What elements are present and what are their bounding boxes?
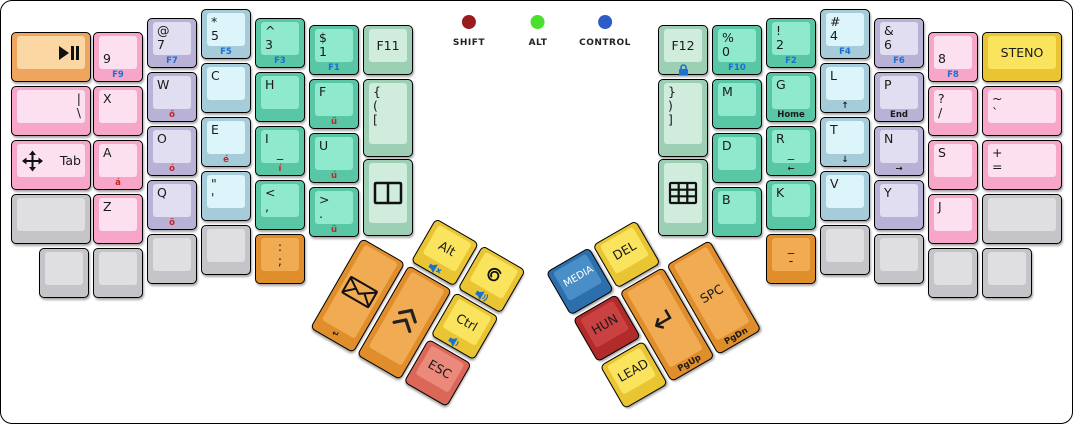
key-legend: 0 bbox=[722, 45, 752, 59]
envelope-icon bbox=[339, 273, 380, 311]
key-b[interactable]: B bbox=[712, 187, 762, 237]
led-control-label: CONTROL bbox=[579, 38, 631, 48]
key-legend: ↵ bbox=[644, 299, 686, 343]
front-legend: ó bbox=[148, 164, 196, 175]
key-legend: ~ bbox=[992, 92, 1052, 106]
front-legend: → bbox=[875, 164, 923, 175]
front-legend: Home bbox=[767, 110, 815, 121]
key-legend: # bbox=[830, 15, 860, 29]
key-legend: Alt bbox=[431, 235, 464, 262]
front-legend bbox=[659, 63, 707, 74]
key-legend: ` bbox=[992, 106, 1052, 120]
grid-icon bbox=[668, 181, 698, 205]
led-shift: SHIFT bbox=[453, 15, 485, 48]
key-legend: / bbox=[938, 106, 968, 120]
led-shift-label: SHIFT bbox=[453, 38, 485, 48]
key-legend: O bbox=[157, 132, 187, 146]
key-a[interactable]: Aá bbox=[93, 140, 143, 190]
key-k[interactable]: K bbox=[766, 180, 816, 230]
key-blank-br-3[interactable] bbox=[928, 248, 978, 298]
key-legend: ! bbox=[776, 24, 806, 38]
key-legend: HUN bbox=[588, 311, 621, 338]
key-h[interactable]: H bbox=[255, 72, 305, 122]
key-legend: 6 bbox=[884, 38, 914, 52]
key-blank-left-row4[interactable] bbox=[11, 194, 91, 244]
key-legend: V bbox=[830, 177, 860, 191]
key-legend: ' bbox=[211, 191, 241, 205]
key-legend: DEL bbox=[608, 237, 641, 264]
key-blank-bl-4[interactable] bbox=[201, 225, 251, 275]
key-legend: > bbox=[319, 193, 349, 207]
key-legend: F bbox=[319, 85, 349, 99]
key-blank-br-4[interactable] bbox=[982, 248, 1032, 298]
key-legend: STENO bbox=[992, 46, 1052, 60]
key-legend: G bbox=[776, 78, 806, 92]
key-legend: | bbox=[21, 92, 81, 106]
key-legend: T bbox=[830, 123, 860, 137]
key-blank-br-2[interactable] bbox=[874, 234, 924, 284]
key-t[interactable]: T↓ bbox=[820, 117, 870, 167]
key-legend: Ctrl bbox=[451, 309, 484, 336]
key-star-5[interactable]: *5F5 bbox=[201, 9, 251, 59]
key-g[interactable]: GHome bbox=[766, 72, 816, 122]
key-legend: ] bbox=[668, 113, 698, 127]
key-legend: M bbox=[722, 85, 752, 99]
key-u[interactable]: Uú bbox=[309, 133, 359, 183]
front-legend: á bbox=[94, 178, 142, 189]
front-legend: ü bbox=[310, 225, 358, 236]
key-m[interactable]: M bbox=[712, 79, 762, 129]
key-excl-2[interactable]: !2F2 bbox=[766, 18, 816, 68]
key-legend: = bbox=[992, 160, 1052, 174]
key-legend: } bbox=[668, 85, 698, 99]
led-control-dot bbox=[598, 15, 612, 29]
key-plus-equals[interactable]: += bbox=[982, 140, 1062, 190]
key-legend: Q bbox=[157, 186, 187, 200]
key-w[interactable]: Wő bbox=[147, 72, 197, 122]
key-i[interactable]: I_í bbox=[255, 126, 305, 176]
key-legend: F11 bbox=[373, 39, 403, 53]
key-f12[interactable]: F12 bbox=[658, 25, 708, 75]
key-legend bbox=[103, 38, 133, 52]
key-legend: 7 bbox=[157, 38, 187, 52]
key-legend: & bbox=[884, 24, 914, 38]
key-legend: J bbox=[938, 200, 968, 214]
key-brace-open[interactable]: {([ bbox=[363, 79, 413, 157]
key-steno[interactable]: STENO bbox=[982, 32, 1062, 82]
move-icon bbox=[22, 150, 43, 171]
key-n[interactable]: N→ bbox=[874, 126, 924, 176]
key-v[interactable]: V bbox=[820, 171, 870, 221]
key-legend: - bbox=[776, 254, 806, 268]
key-legend: { bbox=[373, 85, 403, 99]
key-play-pause[interactable] bbox=[11, 32, 91, 82]
key-legend: E bbox=[211, 123, 241, 137]
key-legend: \ bbox=[21, 106, 81, 120]
front-legend: F6 bbox=[875, 56, 923, 67]
led-alt: ALT bbox=[529, 15, 548, 48]
key-legend: 8 bbox=[938, 52, 968, 66]
key-legend: * bbox=[211, 15, 241, 29]
key-pct-0[interactable]: %0F10 bbox=[712, 25, 762, 75]
key-q[interactable]: Qö bbox=[147, 180, 197, 230]
key-at-7[interactable]: @7F7 bbox=[147, 18, 197, 68]
key-o[interactable]: Oó bbox=[147, 126, 197, 176]
key-amp-6[interactable]: &6F6 bbox=[874, 18, 924, 68]
key-split-layout[interactable] bbox=[363, 159, 413, 236]
front-legend: F8 bbox=[929, 70, 977, 81]
split-icon bbox=[373, 181, 403, 205]
key-legend: _ bbox=[776, 146, 806, 160]
key-legend: : bbox=[265, 240, 295, 254]
key-colon-semicolon[interactable]: :; bbox=[255, 234, 305, 284]
key-9[interactable]: 9F9 bbox=[93, 32, 143, 82]
key-legend: ( bbox=[373, 99, 403, 113]
key-legend: W bbox=[157, 78, 187, 92]
key-legend: 2 bbox=[776, 38, 806, 52]
key-caret-3[interactable]: ^3F3 bbox=[255, 18, 305, 68]
keyboard-canvas: |\Tab9F9XAáZ@7F7WőOóQö*5F5CEé"'^3F3HI_í<… bbox=[0, 0, 1073, 424]
led-control: CONTROL bbox=[579, 15, 631, 48]
key-legend: ESC bbox=[424, 356, 457, 383]
key-dollar-1[interactable]: $1F1 bbox=[309, 25, 359, 75]
key-legend: @ bbox=[157, 24, 187, 38]
front-legend: ← bbox=[767, 164, 815, 175]
key-legend: MEDIA bbox=[562, 265, 593, 290]
key-legend: D bbox=[722, 139, 752, 153]
key-question-slash[interactable]: ?/ bbox=[928, 86, 978, 136]
key-x[interactable]: X bbox=[93, 86, 143, 136]
key-legend: [ bbox=[373, 113, 403, 127]
front-legend: ő bbox=[148, 110, 196, 121]
key-pipe-backslash[interactable]: |\ bbox=[11, 86, 91, 136]
key-legend bbox=[938, 38, 968, 52]
debian-icon bbox=[478, 259, 511, 292]
key-legend: 1 bbox=[319, 45, 349, 59]
key-legend: 5 bbox=[211, 29, 241, 43]
key-legend: LEAD bbox=[615, 358, 648, 385]
key-tab[interactable]: Tab bbox=[11, 140, 91, 190]
key-blank-bl-2[interactable] bbox=[93, 248, 143, 298]
key-blank-right-row4[interactable] bbox=[982, 194, 1062, 244]
key-r[interactable]: R_← bbox=[766, 126, 816, 176]
key-c[interactable]: C bbox=[201, 63, 251, 113]
key-legend: $ bbox=[319, 31, 349, 45]
front-legend: F2 bbox=[767, 56, 815, 67]
key-legend: N bbox=[884, 132, 914, 146]
key-legend: " bbox=[211, 177, 241, 191]
front-legend: F9 bbox=[94, 70, 142, 81]
key-f11[interactable]: F11 bbox=[363, 25, 413, 75]
key-legend: 4 bbox=[830, 29, 860, 43]
key-hash-4[interactable]: #4F4 bbox=[820, 9, 870, 59]
key-legend: F12 bbox=[668, 39, 698, 53]
key-legend: _ bbox=[265, 146, 295, 160]
key-blank-br-1[interactable] bbox=[820, 225, 870, 275]
key-z[interactable]: Z bbox=[93, 194, 143, 244]
front-legend: é bbox=[202, 155, 250, 166]
key-p[interactable]: PEnd bbox=[874, 72, 924, 122]
key-legend: _ bbox=[776, 240, 806, 254]
key-lt-comma[interactable]: <, bbox=[255, 180, 305, 230]
key-legend: S bbox=[938, 146, 968, 160]
key-quote[interactable]: "' bbox=[201, 171, 251, 221]
key-legend: ? bbox=[938, 92, 968, 106]
key-legend: 9 bbox=[103, 52, 133, 66]
key-8[interactable]: 8F8 bbox=[928, 32, 978, 82]
key-e[interactable]: Eé bbox=[201, 117, 251, 167]
key-brace-close[interactable]: })] bbox=[658, 79, 708, 157]
front-legend: ű bbox=[310, 117, 358, 128]
key-gt-period[interactable]: >.ü bbox=[309, 187, 359, 237]
key-legend: 3 bbox=[265, 38, 295, 52]
key-f[interactable]: Fű bbox=[309, 79, 359, 129]
key-l[interactable]: L↑ bbox=[820, 63, 870, 113]
front-legend: ↓ bbox=[821, 155, 869, 166]
key-legend: ) bbox=[668, 99, 698, 113]
chevrons-icon bbox=[389, 301, 425, 337]
key-legend: SPC bbox=[695, 280, 728, 307]
key-legend: I bbox=[265, 132, 295, 146]
key-blank-bl-1[interactable] bbox=[39, 248, 89, 298]
key-legend: . bbox=[319, 207, 349, 221]
key-keypad-layout[interactable] bbox=[658, 159, 708, 236]
key-legend: , bbox=[265, 200, 295, 214]
key-legend: Z bbox=[103, 200, 133, 214]
key-legend: ; bbox=[265, 254, 295, 268]
front-legend: F5 bbox=[202, 47, 250, 58]
front-legend: F1 bbox=[310, 63, 358, 74]
key-legend: < bbox=[265, 186, 295, 200]
key-legend: Y bbox=[884, 186, 914, 200]
key-legend: A bbox=[103, 146, 133, 160]
front-legend: í bbox=[256, 164, 304, 175]
led-shift-dot bbox=[462, 15, 476, 29]
key-s[interactable]: S bbox=[928, 140, 978, 190]
key-blank-bl-3[interactable] bbox=[147, 234, 197, 284]
key-legend: U bbox=[319, 139, 349, 153]
front-legend: ↑ bbox=[821, 101, 869, 112]
key-legend: K bbox=[776, 186, 806, 200]
key-d[interactable]: D bbox=[712, 133, 762, 183]
key-legend: X bbox=[103, 92, 133, 106]
front-legend: ú bbox=[310, 171, 358, 182]
key-legend: + bbox=[992, 146, 1052, 160]
led-alt-dot bbox=[531, 15, 545, 29]
play-pause-icon bbox=[58, 45, 80, 61]
front-legend: F4 bbox=[821, 47, 869, 58]
led-alt-label: ALT bbox=[529, 38, 548, 48]
front-legend: F10 bbox=[713, 63, 761, 74]
front-legend: End bbox=[875, 110, 923, 121]
key-legend: P bbox=[884, 78, 914, 92]
key-y[interactable]: Y bbox=[874, 180, 924, 230]
front-legend: ö bbox=[148, 218, 196, 229]
key-legend: L bbox=[830, 69, 860, 83]
key-legend: C bbox=[211, 69, 241, 83]
front-legend: F7 bbox=[148, 56, 196, 67]
key-tilde-backtick[interactable]: ~` bbox=[982, 86, 1062, 136]
key-legend: R bbox=[776, 132, 806, 146]
key-j[interactable]: J bbox=[928, 194, 978, 244]
key-legend: H bbox=[265, 78, 295, 92]
front-legend: F3 bbox=[256, 56, 304, 67]
key-legend: % bbox=[722, 31, 752, 45]
key-legend: ^ bbox=[265, 24, 295, 38]
key-underscore-dash[interactable]: _- bbox=[766, 234, 816, 284]
key-legend: B bbox=[722, 193, 752, 207]
